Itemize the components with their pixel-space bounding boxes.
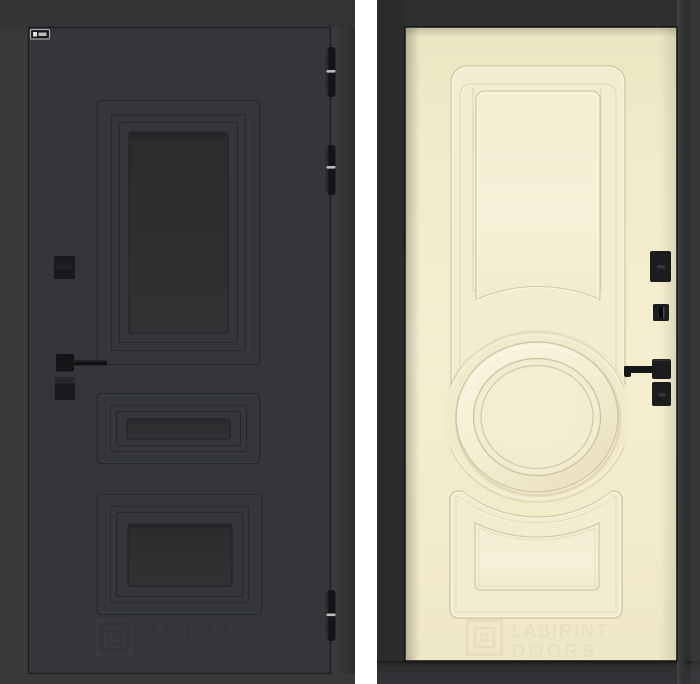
svg-text:LABIRINT: LABIRINT	[512, 621, 609, 641]
svg-text:DOORS: DOORS	[512, 641, 598, 661]
svg-text:LABIRINT: LABIRINT	[142, 620, 239, 640]
svg-text:DOORS: DOORS	[142, 640, 228, 660]
